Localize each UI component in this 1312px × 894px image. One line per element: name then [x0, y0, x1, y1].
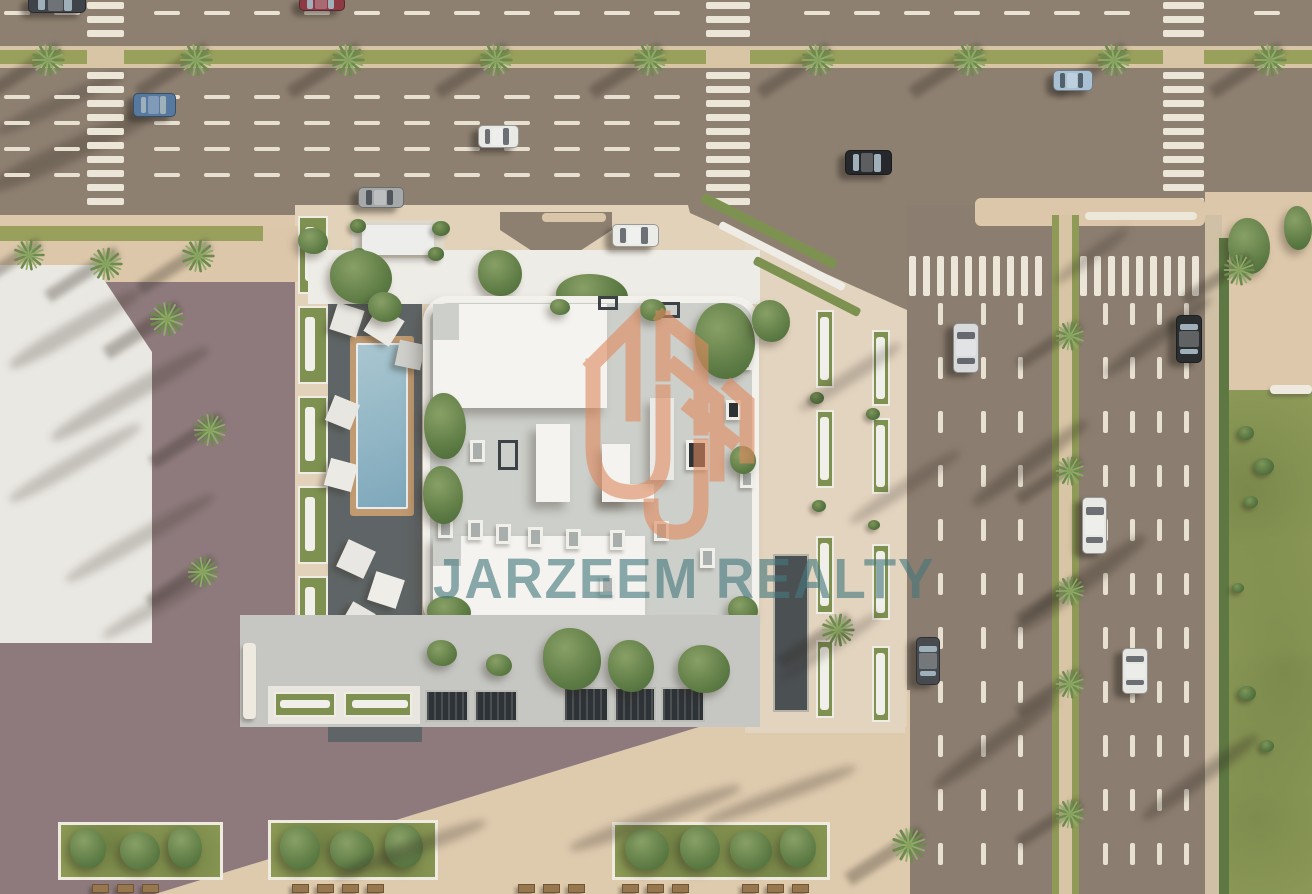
crosswalk-stripe	[87, 2, 124, 9]
crosswalk-stripe	[979, 256, 986, 296]
tree	[543, 628, 601, 690]
crosswalk-stripe	[87, 198, 124, 205]
car-windshield	[1180, 324, 1199, 330]
crosswalk-stripe	[1163, 100, 1204, 107]
car	[299, 0, 345, 11]
bench	[876, 337, 885, 399]
palm-tree	[148, 300, 186, 338]
lane-dash	[604, 147, 630, 151]
lane-dash	[154, 147, 180, 151]
lane-dash	[404, 11, 430, 15]
bush	[1254, 458, 1274, 475]
crosswalk-stripe	[1094, 256, 1101, 296]
palm-tree	[1054, 798, 1086, 830]
palm-tree	[88, 246, 124, 282]
car-windshield	[1126, 656, 1145, 662]
car-rear-window	[920, 671, 936, 676]
car-rear-window	[1086, 537, 1103, 543]
crosswalk-stripe	[1122, 256, 1129, 296]
crosswalk-stripe	[1163, 30, 1204, 37]
lane-dash	[1103, 465, 1108, 487]
car-windshield	[919, 646, 936, 652]
crosswalk-stripe	[87, 142, 124, 149]
car	[478, 125, 519, 148]
lane-dash	[1130, 735, 1135, 757]
car-roof	[492, 128, 503, 145]
lane-dash	[981, 681, 986, 703]
lane-dash	[1184, 735, 1189, 757]
lane-dash	[938, 303, 943, 325]
lane-dash	[4, 173, 30, 177]
ventilation-grate	[563, 687, 609, 722]
car-rear-window	[307, 0, 313, 9]
crosswalk-stripe	[937, 256, 944, 296]
lane-dash	[938, 843, 943, 865]
tree	[678, 645, 730, 693]
lane-dash	[54, 121, 80, 125]
lane-dash	[854, 11, 880, 15]
lane-dash	[404, 95, 430, 99]
lane-dashes	[1018, 303, 1023, 894]
lane-dash	[1018, 789, 1023, 811]
lane-dash	[554, 147, 580, 151]
sunbed	[622, 884, 639, 893]
crosswalk-stripe	[87, 128, 124, 135]
lane-dashes	[1130, 232, 1135, 252]
crosswalk-stripe	[1163, 142, 1204, 149]
lane-dash	[938, 735, 943, 757]
car-windshield	[1078, 73, 1084, 88]
roof-skylight	[496, 524, 511, 544]
crosswalk-stripe	[87, 72, 124, 79]
tree	[752, 300, 790, 342]
bush	[866, 408, 880, 420]
car-windshield	[641, 227, 648, 244]
tree	[640, 299, 666, 321]
lane-dash	[938, 789, 943, 811]
crosswalk-stripe	[87, 114, 124, 121]
tree	[70, 828, 106, 868]
palm-tree	[1054, 575, 1086, 607]
roof-skylight	[726, 400, 741, 420]
crosswalk-stripe	[706, 114, 750, 121]
lane-dash	[54, 173, 80, 177]
entrance-canopy	[362, 225, 434, 255]
palm-tree	[30, 42, 66, 78]
tree	[280, 826, 320, 870]
lane-dashes	[938, 232, 943, 252]
car	[1082, 497, 1107, 554]
lane-dash	[1018, 573, 1023, 595]
lane-dash	[1103, 789, 1108, 811]
lane-dash	[1254, 11, 1280, 15]
lane-dash	[981, 519, 986, 541]
palm-tree	[952, 42, 988, 78]
lane-dash	[404, 147, 430, 151]
crosswalk-stripe	[87, 100, 124, 107]
car-rear-window	[957, 358, 975, 364]
palm-tree	[800, 42, 836, 78]
lane-dash	[604, 11, 630, 15]
car-windshield	[957, 332, 976, 339]
crosswalk-stripe	[1007, 256, 1014, 296]
crosswalk-stripe	[706, 100, 750, 107]
crosswalk-stripe	[1163, 184, 1204, 191]
car	[612, 224, 659, 247]
car	[358, 187, 404, 208]
sunbed	[742, 884, 759, 893]
tree	[298, 228, 328, 254]
lane-dash	[504, 95, 530, 99]
crosswalk-stripe	[87, 86, 124, 93]
lane-dash	[1130, 789, 1135, 811]
lane-dash	[354, 95, 380, 99]
lane-dash	[304, 121, 330, 125]
crosswalk-stripe	[706, 170, 750, 177]
crosswalk-stripe	[87, 30, 124, 37]
lane-dash	[454, 11, 480, 15]
crosswalk-stripe	[706, 2, 750, 9]
palm-tree	[1096, 42, 1132, 78]
crosswalk-stripe	[87, 156, 124, 163]
lane-dash	[1157, 411, 1162, 433]
crosswalk-stripe	[951, 256, 958, 296]
crosswalk-stripe	[1163, 128, 1204, 135]
crosswalk-stripe	[993, 256, 1000, 296]
car	[1053, 70, 1093, 91]
lane-dash	[154, 173, 180, 177]
crosswalk-stripe	[1163, 86, 1204, 93]
car-windshield	[64, 0, 72, 11]
lane-dash	[204, 11, 230, 15]
crosswalk-stripe	[1163, 72, 1204, 79]
tree	[424, 393, 466, 459]
lane-dash	[1103, 843, 1108, 865]
lane-dash	[654, 173, 680, 177]
lane-dash	[1157, 357, 1162, 379]
roof-vent	[498, 440, 518, 470]
lane-dash	[981, 789, 986, 811]
lane-dash	[1103, 735, 1108, 757]
bench	[820, 543, 829, 606]
car	[953, 323, 979, 373]
lane-dash	[904, 11, 930, 15]
lane-dash	[981, 303, 986, 325]
lane-dash	[654, 147, 680, 151]
tree	[608, 640, 654, 692]
lane-dash	[54, 95, 80, 99]
crosswalk-stripe	[909, 256, 916, 296]
roof-volume	[536, 424, 570, 502]
lane-dash	[1157, 573, 1162, 595]
roof-vent	[598, 296, 618, 310]
lane-dash	[604, 121, 630, 125]
lane-dash	[504, 11, 530, 15]
crosswalk-stripe	[87, 16, 124, 23]
car-roof	[148, 96, 159, 114]
lane-dash	[938, 411, 943, 433]
lane-dash	[404, 173, 430, 177]
crosswalk-stripe	[923, 256, 930, 296]
car-rear-window	[141, 97, 146, 113]
bench	[280, 700, 330, 708]
lane-dash	[654, 95, 680, 99]
sunbed	[317, 884, 334, 893]
car-roof	[628, 227, 640, 244]
roof-skylight	[566, 529, 581, 549]
crosswalk	[87, 0, 124, 205]
roof-skylight	[468, 520, 483, 540]
bush	[1238, 426, 1254, 440]
lane-dash	[654, 121, 680, 125]
lane-dash	[1103, 411, 1108, 433]
lane-dash	[1018, 411, 1023, 433]
palm-tree	[192, 412, 228, 448]
lane-dash	[1130, 411, 1135, 433]
roof-skylight	[528, 527, 543, 547]
lane-dash	[604, 173, 630, 177]
car-roof	[1125, 664, 1145, 679]
lane-dash	[1130, 573, 1135, 595]
sunbed	[367, 884, 384, 893]
palm-tree	[1054, 320, 1086, 352]
sunbed	[568, 884, 585, 893]
palm-tree	[1054, 455, 1086, 487]
lane-dash	[1184, 411, 1189, 433]
lane-dash	[981, 627, 986, 649]
lane-dash	[1184, 843, 1189, 865]
tree	[780, 826, 816, 868]
car-windshield	[387, 190, 393, 205]
bench	[876, 425, 885, 487]
crosswalk-stripe	[706, 184, 750, 191]
lane-dash	[254, 173, 280, 177]
car-rear-window	[1126, 680, 1144, 685]
lane-dash	[1184, 627, 1189, 649]
car-rear-window	[366, 190, 372, 204]
crosswalk-stripe	[1136, 256, 1143, 296]
lane-dash	[454, 173, 480, 177]
lane-dash	[554, 121, 580, 125]
lane-dashes	[1184, 232, 1189, 252]
car-windshield	[1086, 507, 1104, 514]
tree	[427, 640, 457, 666]
crosswalk-stripe	[1164, 256, 1171, 296]
vertical-median-grass	[1052, 215, 1059, 894]
roof-skylight	[610, 530, 625, 550]
car	[845, 150, 892, 175]
roof-stair-volume	[650, 398, 674, 480]
lane-dashes	[981, 232, 986, 252]
car-roof	[956, 340, 976, 356]
lane-dash	[354, 173, 380, 177]
lane-dash	[254, 121, 280, 125]
tree	[168, 826, 202, 868]
lane-dash	[204, 95, 230, 99]
crosswalk-stripe	[706, 128, 750, 135]
sunbed	[117, 884, 134, 893]
car-rear-window	[620, 228, 626, 244]
lane-dash	[554, 11, 580, 15]
lane-dash	[1130, 465, 1135, 487]
car-rear-window	[853, 154, 859, 171]
tree	[120, 832, 160, 870]
tree	[1284, 206, 1312, 250]
crosswalk	[706, 0, 750, 210]
tree	[486, 654, 512, 676]
lane-dash	[1157, 735, 1162, 757]
bench	[876, 653, 885, 715]
aerial-site-plan-render: JARZEEM REALTY	[0, 0, 1312, 894]
roof-skylight	[700, 548, 715, 568]
lane-dash	[354, 147, 380, 151]
car-roof	[315, 0, 327, 9]
tree	[478, 250, 522, 296]
palm-tree	[890, 826, 928, 864]
lane-dash	[1157, 681, 1162, 703]
palm-tree	[1054, 668, 1086, 700]
lane-dash	[654, 11, 680, 15]
lane-dash	[254, 147, 280, 151]
crosswalk-stripe	[1035, 256, 1042, 296]
shade-sail	[395, 340, 426, 371]
crosswalk-stripe	[706, 156, 750, 163]
lane-dashes	[1130, 303, 1135, 894]
tree	[550, 299, 570, 315]
lane-dash	[981, 411, 986, 433]
bench	[305, 497, 315, 551]
lane-dash	[354, 11, 380, 15]
lane-dash	[4, 95, 30, 99]
lane-dash	[954, 11, 980, 15]
tree	[368, 292, 402, 322]
palm-tree	[478, 42, 514, 78]
lane-dash	[1130, 627, 1135, 649]
car	[28, 0, 86, 13]
palm-tree	[632, 42, 668, 78]
tree	[730, 830, 772, 870]
crosswalk-stripe	[706, 30, 750, 37]
car-rear-window	[485, 129, 490, 145]
stop-bar	[1085, 212, 1197, 220]
crosswalk-stripe	[1163, 16, 1204, 23]
palm-tree	[12, 238, 46, 272]
bush	[1244, 496, 1258, 508]
lane-dash	[1103, 303, 1108, 325]
sunbed	[792, 884, 809, 893]
lane-dash	[1157, 519, 1162, 541]
lane-dash	[1184, 681, 1189, 703]
crosswalk-stripe	[87, 170, 124, 177]
roof-skylight	[470, 440, 485, 462]
lane-dash	[354, 121, 380, 125]
palm-tree	[180, 238, 216, 274]
crosswalk-stripe	[706, 142, 750, 149]
lane-dash	[1157, 303, 1162, 325]
lane-dash	[504, 173, 530, 177]
lane-dash	[981, 843, 986, 865]
lane-dash	[981, 573, 986, 595]
crosswalk	[908, 256, 1050, 296]
lane-dash	[1004, 11, 1030, 15]
lane-dash	[938, 519, 943, 541]
roof-skylight	[654, 521, 669, 541]
crosswalk-stripe	[706, 86, 750, 93]
lane-dash	[804, 11, 830, 15]
crosswalk-stripe	[1163, 170, 1204, 177]
crosswalk-stripe	[87, 184, 124, 191]
lane-dash	[1018, 303, 1023, 325]
bush	[428, 247, 444, 261]
lane-dash	[554, 95, 580, 99]
crosswalk-stripe	[1108, 256, 1115, 296]
lane-dashes	[938, 303, 943, 894]
lane-dash	[254, 95, 280, 99]
lane-dash	[1184, 519, 1189, 541]
car-windshield	[503, 128, 509, 145]
car-rear-window	[1060, 73, 1065, 87]
bench	[1270, 385, 1312, 394]
car-roof	[48, 0, 63, 11]
lane-dashes	[1103, 303, 1108, 894]
crosswalk-stripe	[706, 16, 750, 23]
sunbed	[142, 884, 159, 893]
car-windshield	[328, 0, 334, 9]
ventilation-grate	[425, 690, 469, 722]
car	[133, 93, 176, 117]
palm-tree	[186, 555, 220, 589]
roof-volume	[433, 304, 607, 408]
roof-deck-notch	[433, 536, 461, 566]
lane-dashes	[0, 11, 1312, 15]
lane-dash	[454, 95, 480, 99]
car-roof	[919, 653, 937, 668]
lane-dash	[1018, 681, 1023, 703]
lane-dash	[454, 121, 480, 125]
bench	[876, 551, 885, 613]
lane-dash	[304, 173, 330, 177]
car	[1176, 315, 1202, 363]
sunbed	[92, 884, 109, 893]
lane-dash	[254, 11, 280, 15]
roof-volume	[602, 484, 654, 502]
lane-dash	[938, 357, 943, 379]
median-island-driveway	[542, 213, 606, 222]
lane-dash	[1184, 465, 1189, 487]
bench	[243, 643, 256, 719]
lane-dash	[204, 147, 230, 151]
lane-dash	[981, 357, 986, 379]
lane-dash	[1103, 627, 1108, 649]
crosswalk-stripe	[1150, 256, 1157, 296]
bush	[350, 219, 366, 233]
lane-dash	[1018, 519, 1023, 541]
lane-dash	[4, 121, 30, 125]
crosswalk-stripe	[1163, 114, 1204, 121]
lane-dash	[1130, 303, 1135, 325]
sunbed	[292, 884, 309, 893]
car-roof	[1067, 73, 1077, 89]
lane-dash	[1018, 735, 1023, 757]
main-road	[0, 0, 1312, 215]
swimming-pool	[356, 343, 408, 509]
bush	[812, 500, 826, 512]
bench	[305, 317, 315, 371]
sunbed	[647, 884, 664, 893]
roof-skylight	[600, 575, 615, 595]
crosswalk-stripe	[706, 72, 750, 79]
crosswalk-stripe	[965, 256, 972, 296]
